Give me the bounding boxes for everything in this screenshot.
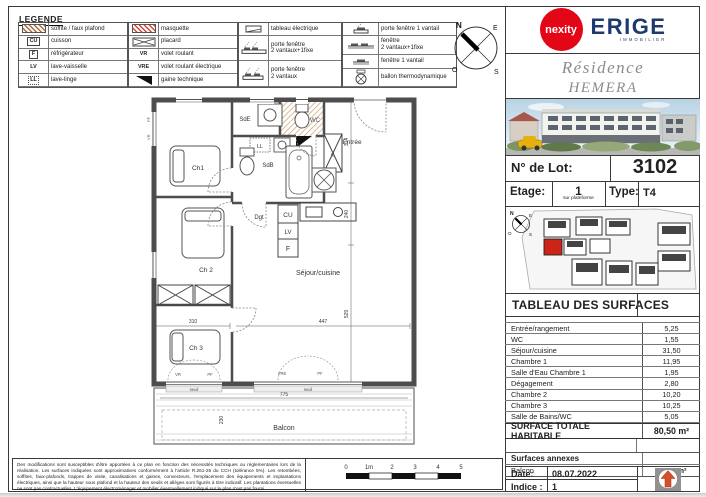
residence-name: Résidence HEMERA (506, 58, 700, 97)
room-label-lv: LV (285, 230, 292, 236)
legend-label: masquette (159, 23, 237, 36)
room-label-ch3: Ch 3 (189, 345, 203, 352)
disclaimer-text: Des modifications sont susceptibles d'êt… (13, 459, 306, 491)
room-label-wc: WC (310, 118, 321, 124)
scale-label: 4 (436, 465, 440, 471)
window-ch1: PF VR (146, 112, 159, 146)
window-label-pf: PF (317, 371, 323, 376)
ballon-thermodynamique-icon (352, 69, 370, 85)
legend-label: lave-vaisselle (49, 61, 127, 74)
compass-n-label: N (510, 211, 514, 217)
compass-e-label: E (529, 213, 532, 218)
balcony: 775 230 Balcon (154, 388, 414, 444)
tableau-electrique-icon (242, 24, 266, 34)
compass-e-label: E (493, 25, 498, 32)
room-label-ll: LL (257, 144, 263, 150)
dim-240: 240 (344, 210, 350, 219)
legend-label: volet roulant (159, 49, 237, 62)
soffite-hatch-icon (22, 24, 46, 33)
erige-logo: ERIGE IMMOBILIER (591, 17, 667, 42)
table-row: Chambre 210,20 (505, 390, 700, 401)
window-label-vre: VRE (278, 371, 287, 376)
bathtub (286, 146, 312, 198)
annexes-title: Surfaces annexes (505, 453, 643, 464)
lave-linge-icon: LL (28, 76, 40, 85)
floor-plan: 775 230 Balcon PL (146, 90, 426, 452)
room-label-sdb: SdB (262, 163, 273, 169)
window-ch2 (150, 252, 159, 278)
promoter-stamp-icon (652, 468, 684, 492)
porte-fenetre-2v1f-icon (241, 41, 267, 55)
room-label-ch2: Ch 2 (199, 267, 213, 274)
surfaces-total-label: SURFACE TOTALE HABITABLE (505, 424, 643, 438)
seuil-label: seuil (304, 387, 313, 392)
legend-label: réfrigérateur (49, 49, 127, 62)
room-label-cu: CU (283, 212, 293, 219)
compass-n-label: N (456, 21, 462, 30)
legend-label: tableau électrique (269, 23, 341, 36)
legend-label: placard (159, 36, 237, 49)
legend-label: porte fenêtre 2 vantaux+1fixe (269, 36, 341, 62)
table-row: WC1,55 (505, 334, 700, 345)
lot-label: N° de Lot: (511, 160, 573, 175)
ballon-thermodynamique (312, 168, 336, 192)
compass-s-label: S (494, 69, 499, 76)
fenetre-2v1f-icon (347, 40, 375, 50)
window-label-vr: VR (146, 134, 151, 140)
legend-col-1: soffite / faux plafond CU cuisson F réfr… (18, 22, 128, 88)
window-label-pf: PF (146, 116, 151, 122)
volet-roulant-icon: VR (140, 51, 148, 57)
indice-value: 1 (552, 482, 557, 492)
residence-line2: HEMERA (506, 80, 700, 97)
table-row: Chambre 111,95 (505, 356, 700, 367)
surfaces-table: Entrée/rangement5,25 WC1,55 Séjour/cuisi… (505, 322, 700, 477)
dim-ch3-width: 310 (189, 319, 198, 325)
legend-label: ballon thermodynamique (379, 69, 456, 87)
legend: soffite / faux plafond CU cuisson F réfr… (18, 22, 457, 88)
highlighted-lot (544, 239, 562, 255)
legend-label: volet roulant électrique (159, 61, 237, 74)
scale-label: 5 (459, 465, 463, 471)
legend-label: porte fenêtre 2 vantaux (269, 61, 341, 87)
dim-sejour-width: 447 (319, 319, 328, 325)
seuil-label: seuil (190, 387, 199, 392)
scan-shadow (0, 493, 706, 497)
scale-label: 2 (390, 465, 394, 471)
masquette-hatch-icon (132, 24, 156, 33)
room-label-dgt: Dgt (254, 215, 264, 221)
building-photo (506, 99, 700, 155)
table-row: Entrée/rangement5,25 (505, 323, 700, 334)
window-label-pf: PF (207, 372, 213, 377)
gaine-technique-icon (136, 76, 152, 85)
nexity-logo: nexity (540, 8, 583, 51)
compass-rose: N E O S (448, 12, 504, 76)
legend-label: soffite / faux plafond (49, 23, 127, 36)
surfaces-total-row: SURFACE TOTALE HABITABLE 80,50 m² (505, 423, 700, 439)
compass-o-label: O (508, 231, 512, 236)
window-label-vr: VR (175, 372, 181, 377)
type-label: Type: (609, 186, 639, 198)
table-row: Chambre 310,25 (505, 401, 700, 412)
annexes-header-row: Surfaces annexes (505, 453, 700, 465)
porte-fenetre-2v-icon (241, 67, 267, 81)
legend-label: porte fenêtre 1 vantail (379, 23, 456, 36)
site-plan: N E O S (506, 207, 700, 292)
scale-label: 3 (413, 465, 417, 471)
legend-col-2: masquette placard VR volet roulant VRE v… (128, 22, 238, 88)
room-label-ch1: Ch1 (192, 165, 204, 172)
bed-ch2 (182, 208, 224, 258)
fenetre-1v-icon (349, 56, 373, 66)
lot-value: 3102 (610, 156, 700, 179)
volet-roulant-electrique-icon: VRE (138, 64, 149, 70)
legend-label: fenêtre 1 vantail (379, 55, 456, 69)
date-value: 08.07.2022 (552, 469, 597, 479)
room-label-sejour: Séjour/cuisine (296, 270, 340, 277)
scale-label: 1m (365, 465, 373, 471)
footer-box: Des modifications sont susceptibles d'êt… (12, 458, 503, 490)
compass-s-label: S (529, 232, 532, 237)
scale-label: 0 (344, 465, 348, 471)
room-label-pl: PL (330, 151, 335, 157)
table-row: Dégagement2,80 (505, 378, 700, 389)
placard-icon (132, 37, 156, 47)
sde-basin (258, 104, 282, 126)
sdb-toilet (240, 148, 254, 175)
erige-wordmark: ERIGE (591, 17, 667, 37)
dim-529: 529 (344, 310, 350, 319)
dim-balcon-width: 775 (280, 392, 289, 398)
room-label-f: F (286, 246, 290, 253)
type-value: T4 (643, 187, 656, 199)
legend-col-3: tableau électrique porte fenêtre 2 vanta… (238, 22, 342, 88)
legend-label: fenêtre 2 vantaux+1fixe (379, 36, 456, 55)
surfaces-title: TABLEAU DES SURFACES (512, 298, 669, 312)
room-label-balcon: Balcon (273, 425, 295, 432)
legend-label: lave-linge (49, 74, 127, 87)
indice-label: Indice : (511, 482, 543, 492)
empty-row (505, 439, 700, 453)
refrigerateur-icon: F (29, 50, 37, 59)
legend-col-4: porte fenêtre 1 vantail fenêtre 2 vantau… (342, 22, 457, 88)
residence-line1: Résidence (506, 58, 700, 78)
porte-fenetre-1v-icon (349, 23, 373, 34)
table-row: Séjour/cuisine31,50 (505, 345, 700, 356)
brand-row: nexity ERIGE IMMOBILIER (506, 6, 700, 53)
etage-label: Etage: (510, 186, 545, 198)
cuisson-icon: CU (27, 37, 40, 46)
legend-label: cuisson (49, 36, 127, 49)
date-label: Date: (511, 469, 534, 479)
table-row: Salle d'Eau Chambre 11,95 (505, 367, 700, 378)
plan-sheet: { "legend":{ "title":"LEGENDE", "col1":[… (0, 0, 706, 497)
etage-sub: sur plateforme (552, 196, 605, 201)
legend-label: gaine technique (159, 74, 237, 87)
room-label-entree: Entrée (342, 139, 362, 146)
surfaces-total-value: 80,50 m² (643, 426, 700, 436)
scale-bar: 0 1m 2 3 4 5 (306, 459, 502, 489)
wc-toilet (295, 104, 309, 128)
compass-o-label: O (452, 67, 458, 74)
lave-vaisselle-icon: LV (30, 64, 37, 70)
room-label-sde: SdE (239, 117, 250, 123)
dim-balcon-depth: 230 (219, 416, 225, 425)
